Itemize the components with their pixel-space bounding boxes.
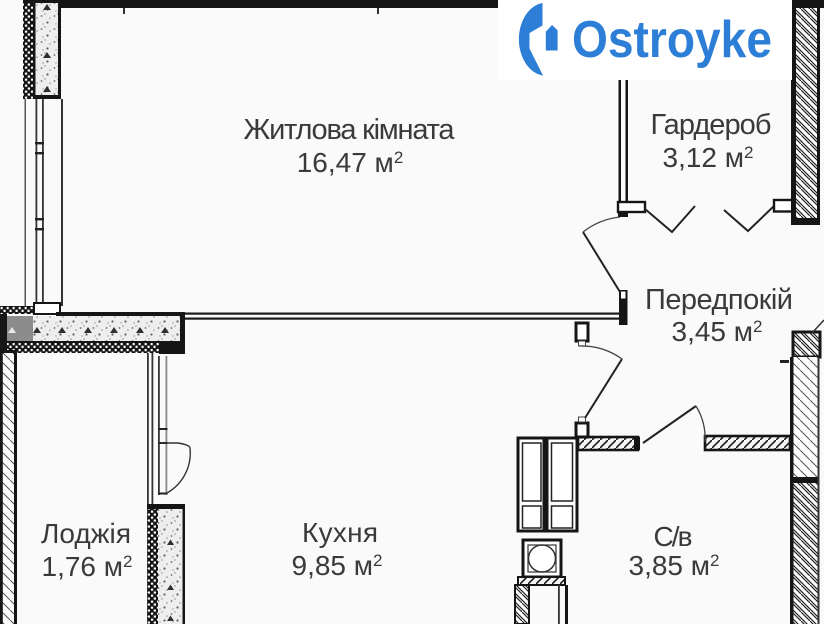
svg-text:9,85 м2: 9,85 м2	[292, 550, 383, 581]
svg-text:3,45 м2: 3,45 м2	[672, 316, 763, 347]
svg-text:Житлова кімната: Житлова кімната	[244, 114, 456, 146]
svg-text:Кухня: Кухня	[302, 517, 378, 548]
svg-text:С/в: С/в	[654, 521, 693, 552]
svg-text:Гардероб: Гардероб	[651, 109, 772, 141]
svg-text:Передпокій: Передпокій	[645, 284, 793, 316]
svg-text:1,76 м2: 1,76 м2	[42, 551, 133, 582]
svg-text:3,85 м2: 3,85 м2	[629, 550, 720, 581]
svg-text:Ostroyke: Ostroyke	[572, 11, 772, 69]
svg-text:Лоджія: Лоджія	[41, 518, 131, 549]
svg-text:3,12 м2: 3,12 м2	[663, 142, 754, 173]
svg-text:16,47 м2: 16,47 м2	[297, 147, 404, 178]
